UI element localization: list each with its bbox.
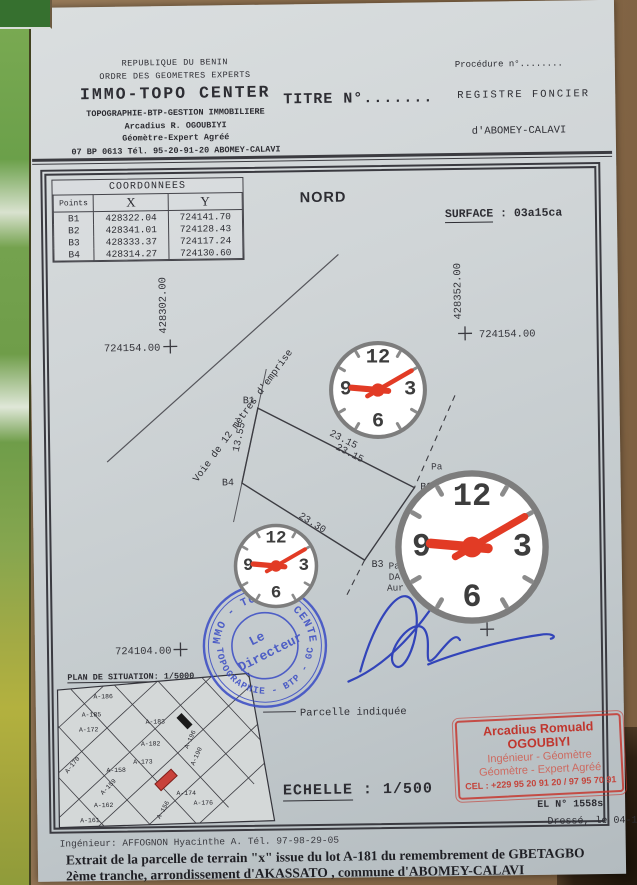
- svg-text:A-172: A-172: [79, 726, 99, 733]
- letterhead-country: REPUBLIQUE DU BENIN: [41, 56, 309, 70]
- road-edge-line: [104, 254, 341, 462]
- scanned-document-photo: REPUBLIQUE DU BENIN ORDRE DES GEOMETRES …: [0, 0, 637, 885]
- el-number: EL N° 1558s: [537, 799, 603, 811]
- distance-labels: 23.15 23.15 23.30 13.55 13.55: [230, 419, 425, 547]
- surveyor-stamp: Arcadius Romuald OGOUBIYI Ingénieur - Gé…: [455, 713, 625, 800]
- svg-text:A-186: A-186: [93, 693, 113, 700]
- distance-b2-b3: 13.55: [399, 513, 424, 544]
- engineer-line: Ingénieur: AFFOGNON Hyacinthe A. Tél. 97…: [60, 835, 339, 850]
- svg-text:A-173: A-173: [133, 758, 153, 765]
- green-object-corner: [0, 0, 52, 29]
- company-name: IMMO-TOPO CENTER: [41, 82, 309, 105]
- point-label-b2: B2: [420, 481, 432, 492]
- company-owner: Arcadius R. OGOUBIYI: [42, 119, 310, 133]
- svg-text:A-183: A-183: [146, 718, 166, 725]
- boundary-extension-dashed: [413, 395, 456, 487]
- road-label: Voie de 12 mètres d'emprise: [191, 347, 295, 484]
- northing-top-left: 724154.00: [104, 343, 161, 356]
- scale-label: ECHELLE : 1/500: [283, 780, 433, 799]
- northing-top-right: 724154.00: [479, 328, 536, 341]
- procedure-number: Procédure n°........: [455, 59, 563, 71]
- parcel-boundary: [241, 406, 415, 562]
- company-activity: TOPOGRAPHIE-BTP-GESTION IMMOBILIERE: [41, 106, 309, 120]
- easting-right: 428352.00: [452, 263, 465, 320]
- title-number: TITRE N°.......: [283, 89, 433, 108]
- distance-b4-b3: 23.30: [297, 510, 328, 535]
- svg-text:A-161: A-161: [80, 817, 100, 824]
- point-label-b4: B4: [222, 477, 234, 488]
- svg-text:A-158: A-158: [106, 767, 126, 774]
- easting-left: 428302.00: [157, 277, 170, 334]
- survey-document-paper: REPUBLIQUE DU BENIN ORDRE DES GEOMETRES …: [26, 0, 626, 882]
- plan-frame: COORDONNEES Points X Y B1 428322.04 7241…: [40, 162, 609, 834]
- letterhead-order: ORDRE DES GEOMETRES EXPERTS: [41, 69, 309, 83]
- svg-text:A-182: A-182: [141, 740, 161, 747]
- registre-foncier: REGISTRE FONCIER: [457, 88, 590, 102]
- company-owner-title: Géomètre-Expert Agréé: [42, 131, 310, 145]
- green-ruler-strip: [0, 0, 31, 885]
- svg-text:A-162: A-162: [94, 802, 114, 809]
- point-label-b1: B1: [243, 395, 255, 406]
- svg-text:Pa: Pa: [431, 461, 443, 472]
- svg-text:A-174: A-174: [176, 790, 196, 797]
- drawn-date: Dressé, le 04-12-2023: [547, 815, 637, 828]
- svg-text:A-176: A-176: [194, 800, 214, 807]
- registre-city: d'ABOMEY-CALAVI: [472, 124, 567, 137]
- letterhead: REPUBLIQUE DU BENIN ORDRE DES GEOMETRES …: [41, 56, 310, 160]
- svg-text:A-185: A-185: [82, 711, 102, 718]
- director-signature: [307, 566, 589, 690]
- northing-bottom: 724104.00: [115, 646, 172, 659]
